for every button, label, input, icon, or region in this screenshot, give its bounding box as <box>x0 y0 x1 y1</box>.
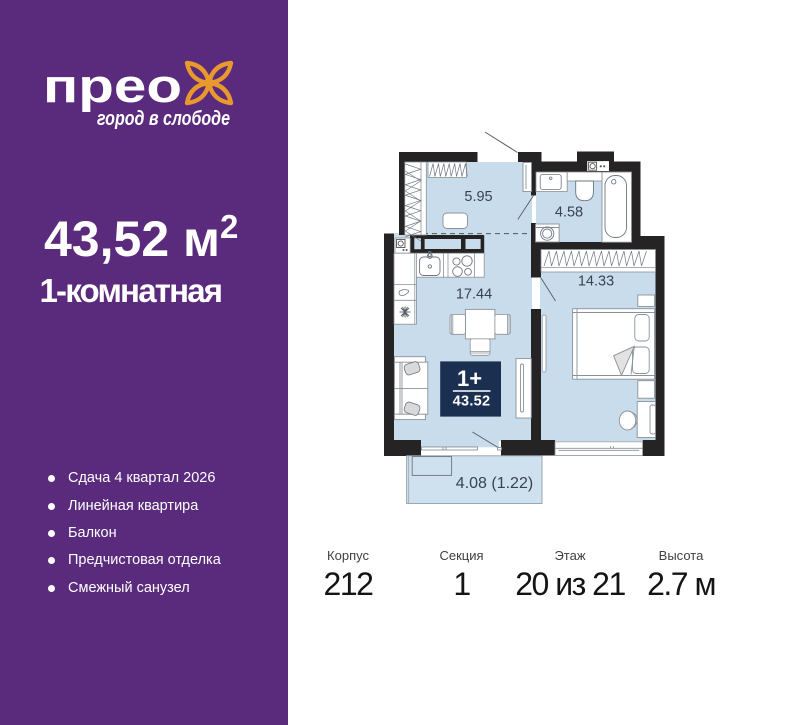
svg-text:17.44: 17.44 <box>456 287 492 303</box>
svg-text:4.58: 4.58 <box>555 205 583 221</box>
svg-text:4.08 (1.22): 4.08 (1.22) <box>456 475 533 492</box>
svg-text:14.33: 14.33 <box>578 274 614 290</box>
svg-text:5.95: 5.95 <box>464 189 492 205</box>
svg-text:43.52: 43.52 <box>453 394 491 410</box>
svg-text:1+: 1+ <box>457 366 482 391</box>
